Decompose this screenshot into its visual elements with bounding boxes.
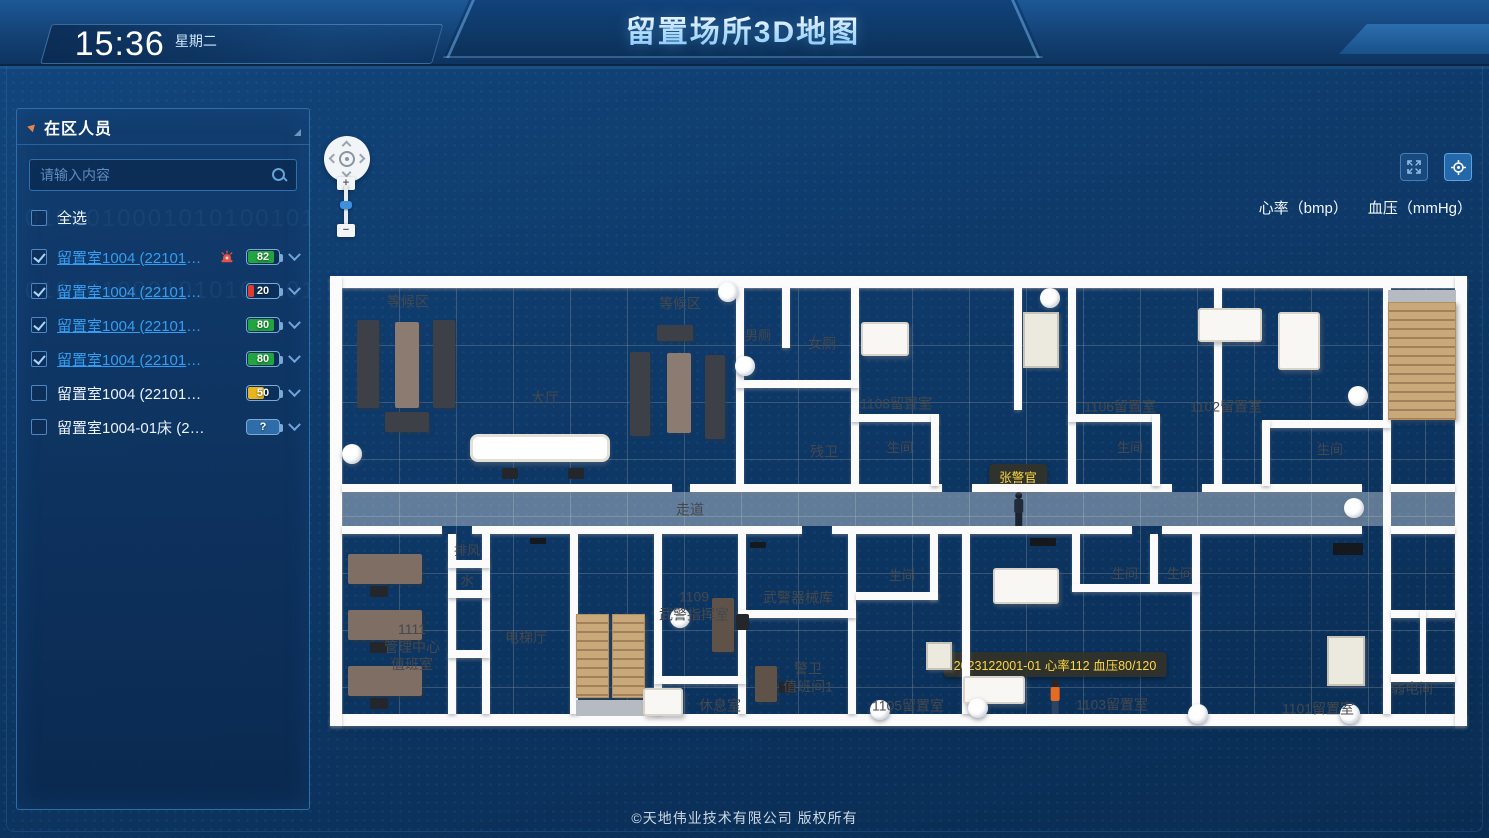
desk [348, 666, 422, 696]
wall [330, 714, 1467, 726]
wall [1391, 526, 1455, 534]
locate-button[interactable] [1444, 153, 1472, 181]
header-bar: 15:36 星期二 留置场所3D地图 [0, 0, 1489, 66]
list-item[interactable]: 留置室1004 (22101315002) 80 [17, 308, 309, 342]
zoom-out-button[interactable]: − [337, 224, 355, 237]
wall [1072, 584, 1200, 592]
bed [1278, 312, 1320, 370]
chair [370, 698, 388, 709]
table [667, 353, 691, 433]
page-title: 留置场所3D地图 [626, 7, 860, 51]
panel-header: 在区人员 [17, 109, 309, 145]
sensor-dot[interactable] [1348, 386, 1368, 406]
pan-right-icon[interactable] [356, 154, 366, 164]
search-icon[interactable] [271, 167, 287, 183]
cabinet [1023, 312, 1059, 368]
locate-icon [1450, 159, 1467, 176]
deskv [712, 598, 734, 652]
cabinet [926, 642, 952, 670]
desk [348, 554, 422, 584]
counter [470, 434, 610, 462]
header-decoration [1339, 24, 1489, 54]
wall [851, 414, 939, 422]
wall [448, 650, 490, 658]
table [395, 322, 419, 408]
floorplan[interactable]: 张警官 2023122001-01 心率112 血压80/120 等候区等候区大… [330, 262, 1467, 738]
wall [736, 380, 859, 388]
wall [654, 534, 662, 714]
select-all-row[interactable]: 全选 [17, 201, 309, 236]
stairs [612, 614, 645, 698]
tv [750, 542, 766, 548]
bed [993, 568, 1059, 604]
row-checkbox[interactable] [31, 385, 47, 401]
panel-corner-icon [294, 129, 301, 136]
row-label: 留置室1004 (22101315002) [57, 281, 208, 302]
chair [779, 682, 795, 693]
clock-time: 15:36 [75, 25, 165, 64]
legend-blood-pressure: 血压（mmHg） [1368, 197, 1472, 218]
battery-badge: 80 [246, 351, 280, 367]
wall [738, 534, 746, 618]
battery-value: 50 [247, 386, 279, 400]
battery-badge: 80 [246, 317, 280, 333]
bed [861, 322, 909, 356]
time-panel: 15:36 星期二 [40, 24, 443, 64]
officer-figure[interactable] [1011, 492, 1025, 528]
sensor-dot[interactable] [342, 444, 362, 464]
wall [1150, 534, 1158, 590]
list-item[interactable]: 留置室1004-01床 (22101315... ? [17, 410, 309, 444]
row-checkbox[interactable] [31, 317, 47, 333]
zoom-slider[interactable]: + − [337, 181, 355, 229]
battery-badge: ? [246, 419, 280, 435]
wall [654, 676, 746, 684]
pan-down-icon[interactable] [342, 168, 352, 178]
desk [348, 610, 422, 640]
vitals-legend: 心率（bmp） 血压（mmHg） [1259, 197, 1472, 218]
fullscreen-button[interactable] [1400, 153, 1428, 181]
wall [1192, 534, 1200, 714]
wall [1152, 414, 1160, 486]
wall [1162, 526, 1362, 534]
officer-marker[interactable]: 张警官 [989, 464, 1047, 528]
wall [342, 484, 672, 492]
wall [848, 534, 856, 714]
landing [1388, 290, 1456, 302]
chevron-down-icon[interactable] [288, 384, 301, 397]
row-checkbox[interactable] [31, 419, 47, 435]
list-item[interactable]: 留置室1004 (22101315002) 20 [17, 274, 309, 308]
sensor-dot[interactable] [1340, 704, 1360, 724]
row-label: 留置室1004 (22101315002) [57, 247, 208, 268]
bench [385, 412, 429, 432]
list-item[interactable]: 留置室1004 (22101315002) 50 [17, 376, 309, 410]
row-checkbox[interactable] [31, 283, 47, 299]
sensor-dot[interactable] [718, 282, 738, 302]
stairs [1388, 302, 1456, 420]
detainee-vitals-tooltip: 2023122001-01 心率112 血压80/120 [944, 652, 1167, 677]
row-label: 留置室1004 (22101315002) [57, 349, 208, 370]
row-label: 留置室1004-01床 (22101315... [57, 417, 208, 438]
list-item[interactable]: 留置室1004 (22101315002) 80 [17, 342, 309, 376]
row-checkbox[interactable] [31, 351, 47, 367]
stool [502, 468, 518, 479]
tv [1030, 538, 1056, 546]
battery-value: 82 [247, 250, 279, 264]
wall [448, 590, 490, 598]
wall [448, 560, 490, 568]
battery-value: 20 [247, 284, 279, 298]
wall [1455, 276, 1467, 726]
battery-value: ? [247, 420, 279, 434]
battery-badge: 50 [246, 385, 280, 401]
panel-arrow-icon [27, 121, 38, 132]
sensor-dot[interactable] [870, 700, 890, 720]
wall [342, 526, 442, 534]
bed [643, 688, 683, 716]
wall [832, 526, 1132, 534]
bench [433, 320, 455, 408]
sensor-dot[interactable] [1188, 704, 1208, 724]
row-label: 留置室1004 (22101315002) [57, 315, 208, 336]
wall [931, 414, 939, 486]
wall [330, 276, 1467, 288]
copyright-text: ©天地伟业技术有限公司 版权所有 [0, 808, 1489, 828]
tv [1333, 543, 1363, 555]
chevron-down-icon[interactable] [288, 248, 301, 261]
chair [736, 614, 749, 630]
row-label: 留置室1004 (22101315002) [57, 383, 208, 404]
search-box [29, 159, 297, 191]
cabinet [1327, 636, 1365, 686]
bench [630, 352, 650, 436]
chevron-down-icon[interactable] [288, 316, 301, 329]
sensor-dot[interactable] [670, 608, 690, 628]
wall [690, 484, 942, 492]
wall [1068, 288, 1076, 486]
search-input[interactable] [29, 159, 297, 191]
chevron-down-icon[interactable] [288, 282, 301, 295]
battery-value: 80 [247, 352, 279, 366]
bench [657, 325, 693, 341]
chair [370, 586, 388, 597]
pan-left-icon[interactable] [329, 154, 339, 164]
battery-badge: 20 [246, 283, 280, 299]
legend-heart-rate: 心率（bmp） [1259, 197, 1348, 218]
select-all-label: 全选 [57, 207, 87, 228]
detainee-figure[interactable] [1048, 680, 1062, 716]
deskv [755, 666, 777, 702]
wall [1014, 288, 1022, 410]
compass-center-icon[interactable] [339, 151, 355, 167]
personnel-panel: 0101010001010100101010110010101001011010… [16, 108, 310, 810]
wall [930, 534, 938, 600]
stool [568, 468, 584, 479]
select-all-checkbox[interactable] [31, 210, 47, 226]
wall [330, 276, 342, 726]
tv [530, 538, 546, 544]
chevron-down-icon[interactable] [288, 418, 301, 431]
clock-weekday: 星期二 [175, 31, 217, 51]
pan-up-icon[interactable] [342, 141, 352, 151]
compass-control[interactable] [324, 136, 370, 182]
battery-value: 80 [247, 318, 279, 332]
fullscreen-icon [1406, 159, 1422, 175]
chair [370, 642, 388, 653]
sensor-dot[interactable] [1040, 288, 1060, 308]
bench [357, 320, 379, 408]
sensor-dot[interactable] [968, 698, 988, 718]
bed [1198, 308, 1262, 342]
alarm-icon [218, 249, 236, 265]
wall [1072, 534, 1080, 590]
bench [705, 355, 725, 439]
wall [782, 288, 790, 348]
wall [1391, 484, 1455, 492]
wall [1420, 610, 1426, 674]
stairs [576, 614, 609, 698]
panel-title: 在区人员 [44, 115, 112, 139]
landing [576, 700, 646, 716]
corridor-floor [342, 492, 1455, 526]
sensor-dot[interactable] [1344, 498, 1364, 518]
wall [472, 526, 802, 534]
person-list: 留置室1004 (22101315002) 82 留置室1004 (221013… [17, 240, 309, 444]
list-item[interactable]: 留置室1004 (22101315002) 82 [17, 240, 309, 274]
title-panel: 留置场所3D地图 [443, 0, 1043, 58]
wall [1202, 484, 1362, 492]
wall [856, 592, 938, 600]
zoom-handle[interactable] [340, 201, 352, 209]
wall [1262, 420, 1270, 486]
chevron-down-icon[interactable] [288, 350, 301, 363]
sensor-dot[interactable] [735, 356, 755, 376]
wall [1262, 420, 1391, 428]
wall [738, 610, 856, 618]
wall [1068, 414, 1160, 422]
wall [972, 484, 1172, 492]
wall [1391, 674, 1455, 682]
battery-badge: 82 [246, 249, 280, 265]
row-checkbox[interactable] [31, 249, 47, 265]
